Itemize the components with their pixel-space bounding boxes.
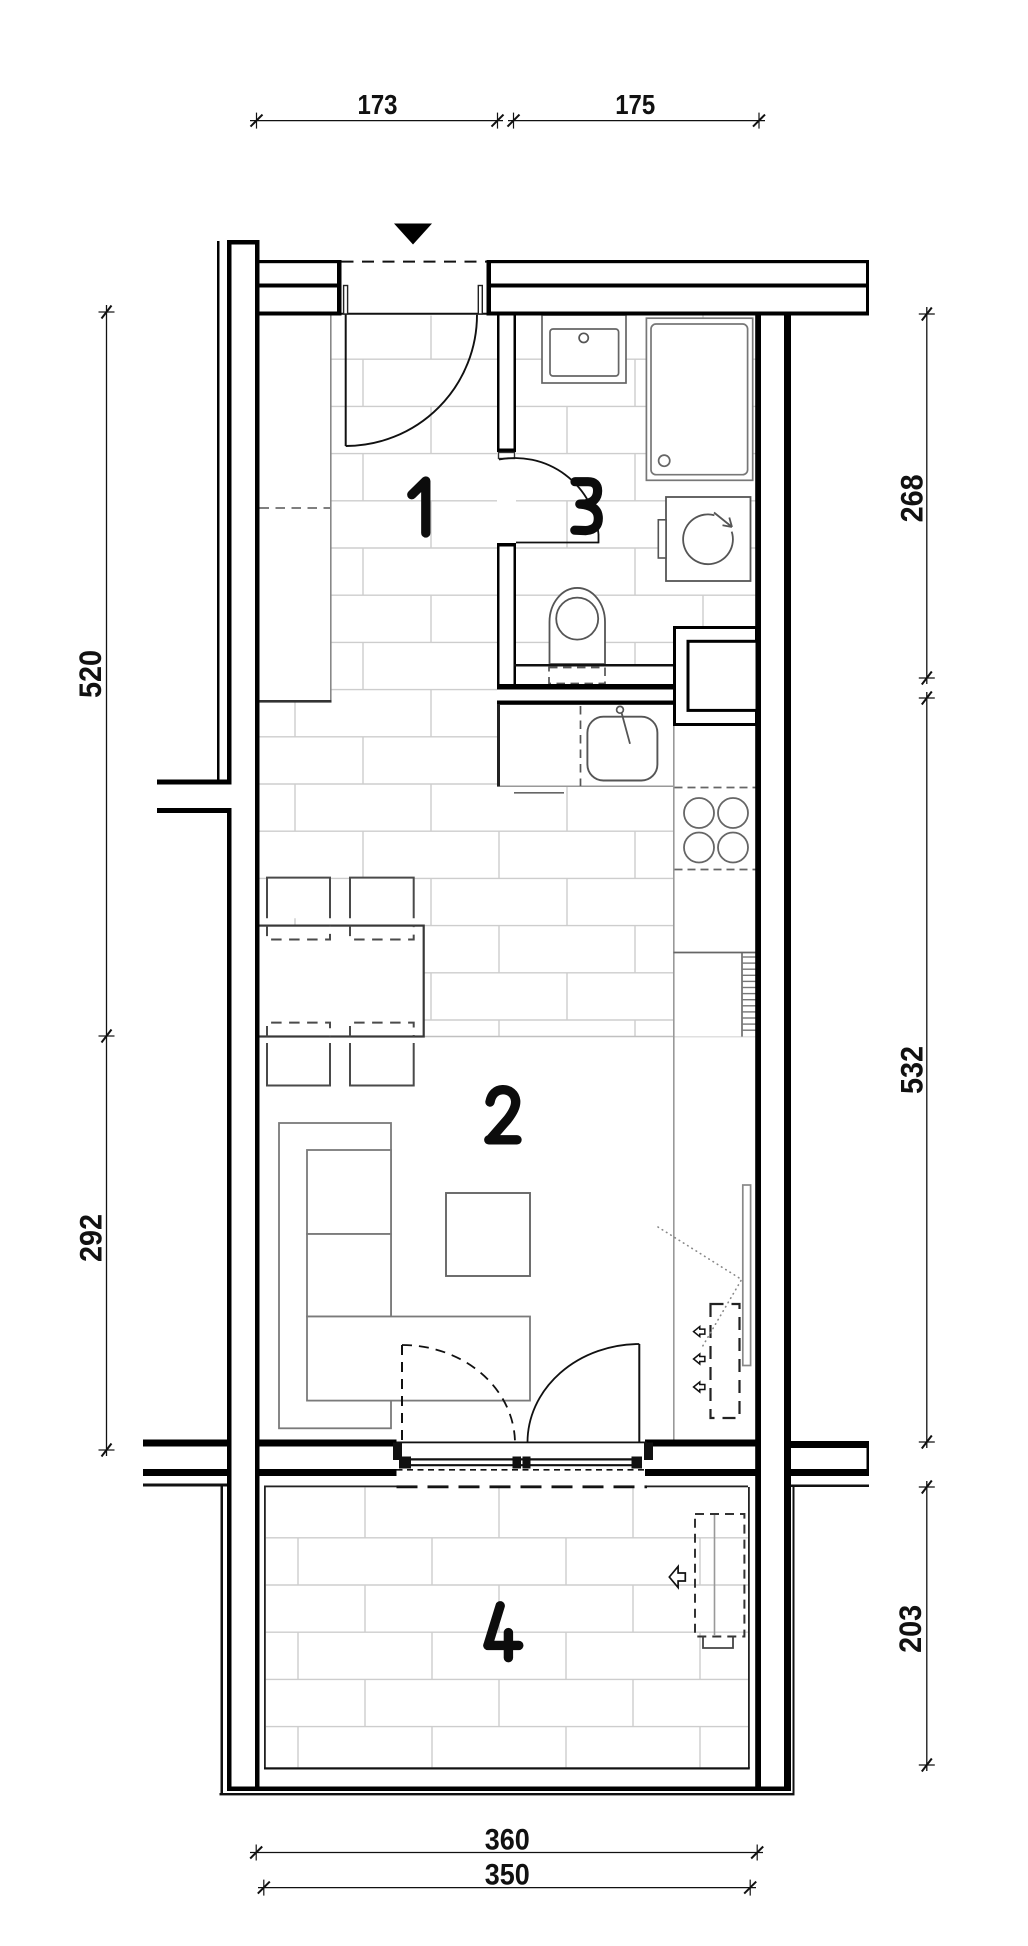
- svg-text:292: 292: [73, 1214, 109, 1262]
- svg-text:203: 203: [892, 1605, 928, 1653]
- svg-text:173: 173: [358, 89, 398, 120]
- svg-text:175: 175: [615, 89, 655, 120]
- svg-text:520: 520: [72, 650, 108, 698]
- svg-text:268: 268: [894, 474, 930, 522]
- svg-text:350: 350: [485, 1859, 530, 1892]
- svg-text:360: 360: [485, 1824, 530, 1857]
- svg-text:532: 532: [894, 1046, 930, 1094]
